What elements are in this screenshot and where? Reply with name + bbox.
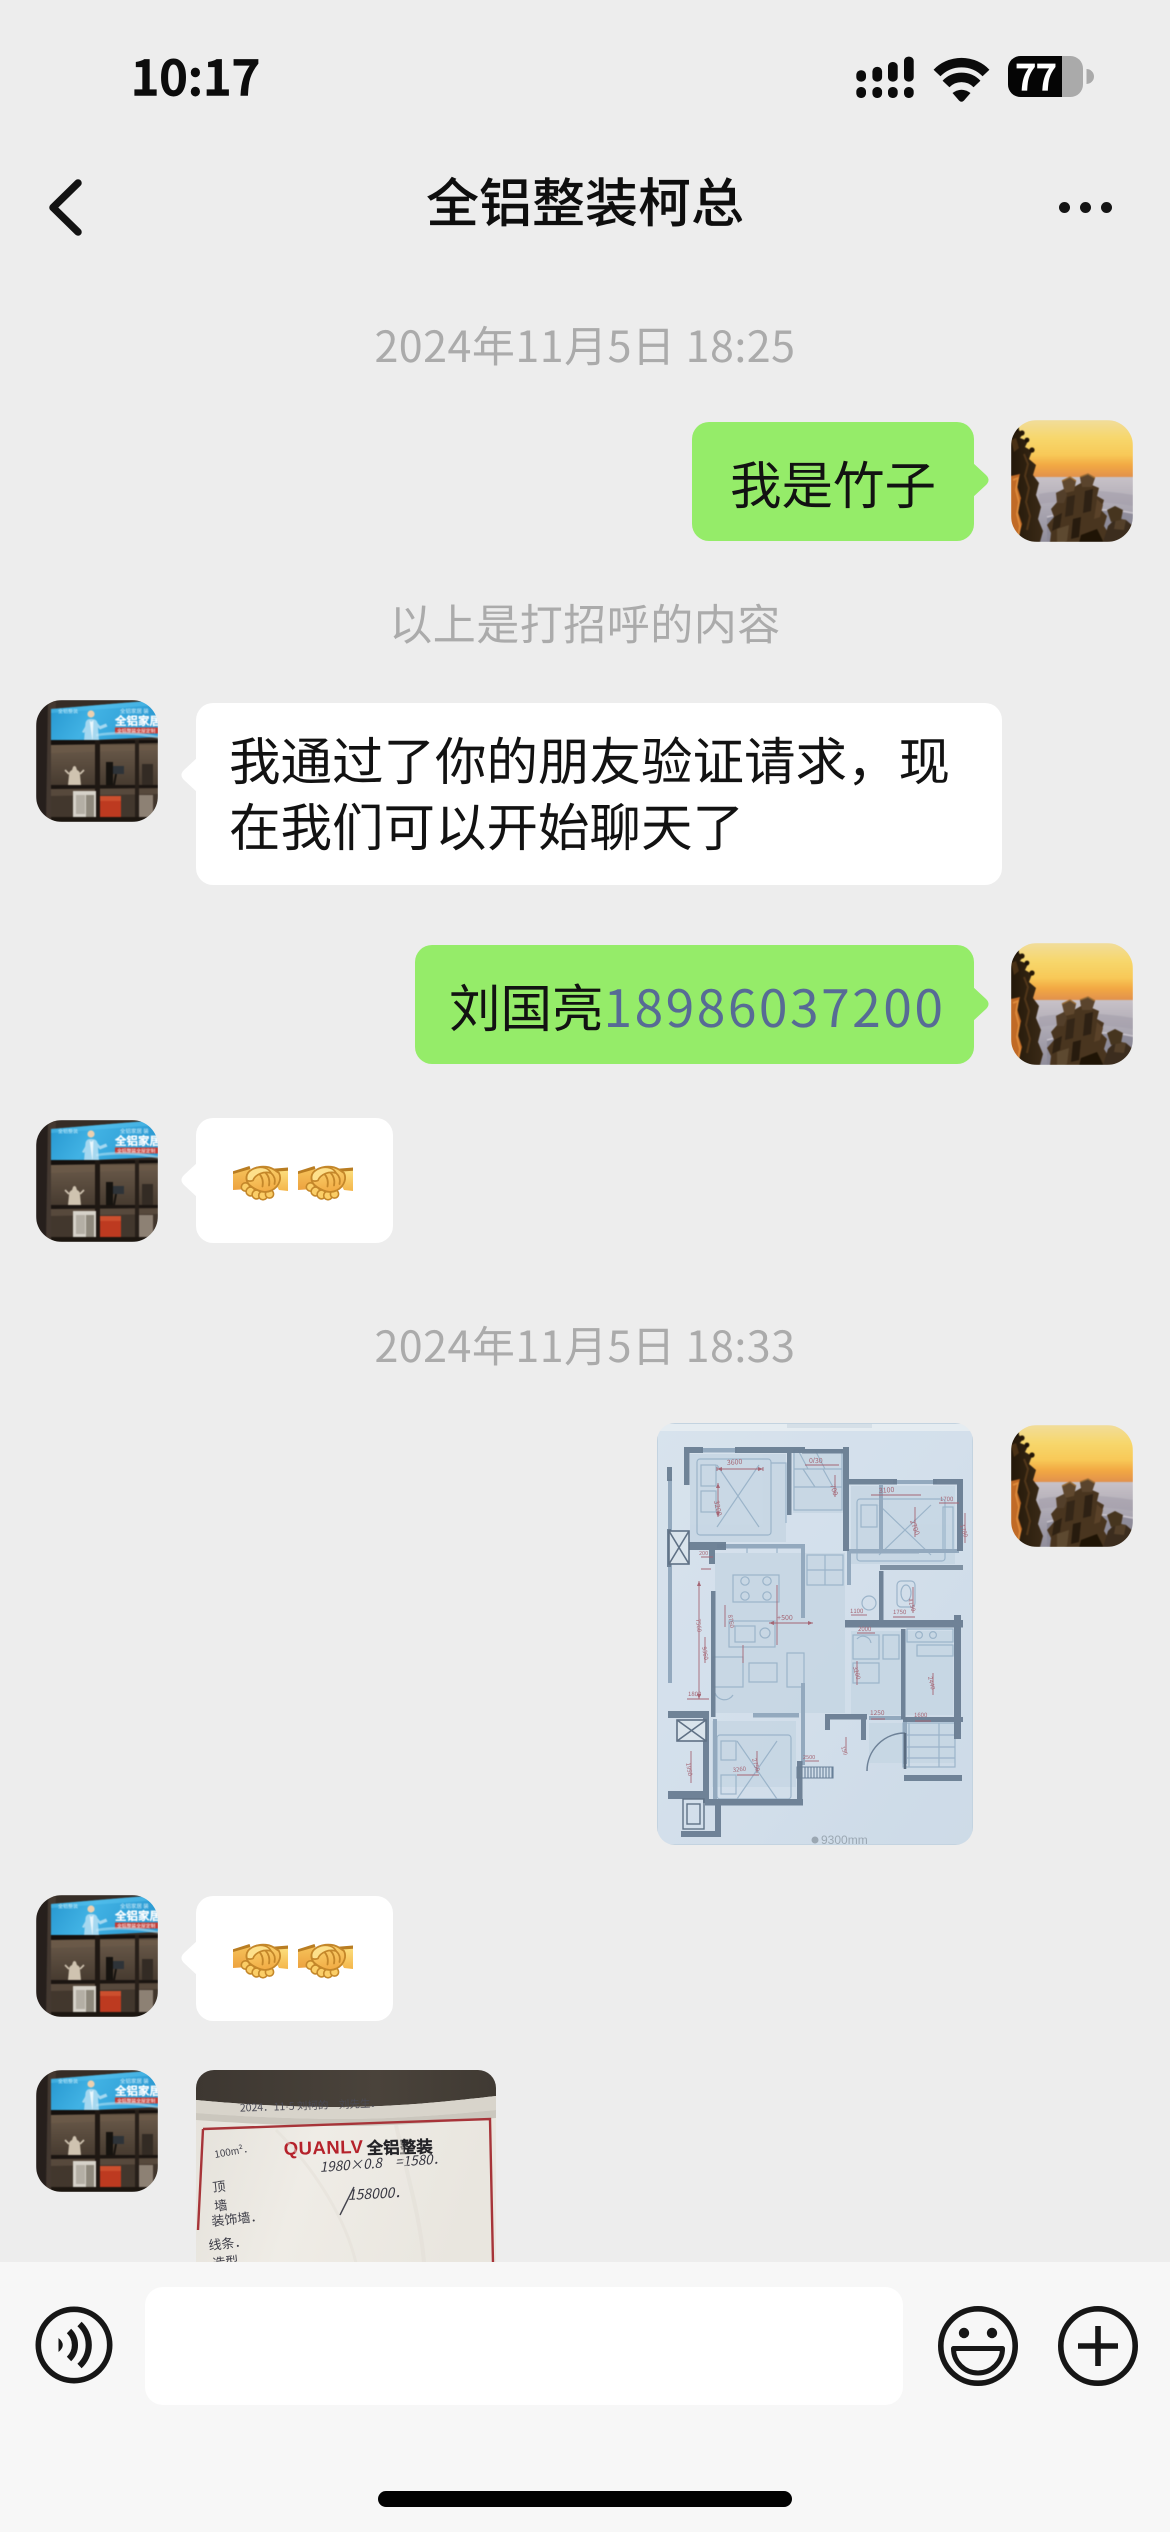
svg-text:158000．: 158000． <box>347 2182 409 2205</box>
svg-text:全铝整装: 全铝整装 <box>58 1903 78 1910</box>
svg-text:顶: 顶 <box>211 2176 226 2196</box>
svg-text:全铝整装: 全铝整装 <box>58 2078 78 2085</box>
svg-text:77: 77 <box>1015 50 1056 101</box>
svg-text:全铝整装: 全铝整装 <box>58 708 78 715</box>
svg-text:全铝整装: 全铝整装 <box>58 1128 78 1135</box>
